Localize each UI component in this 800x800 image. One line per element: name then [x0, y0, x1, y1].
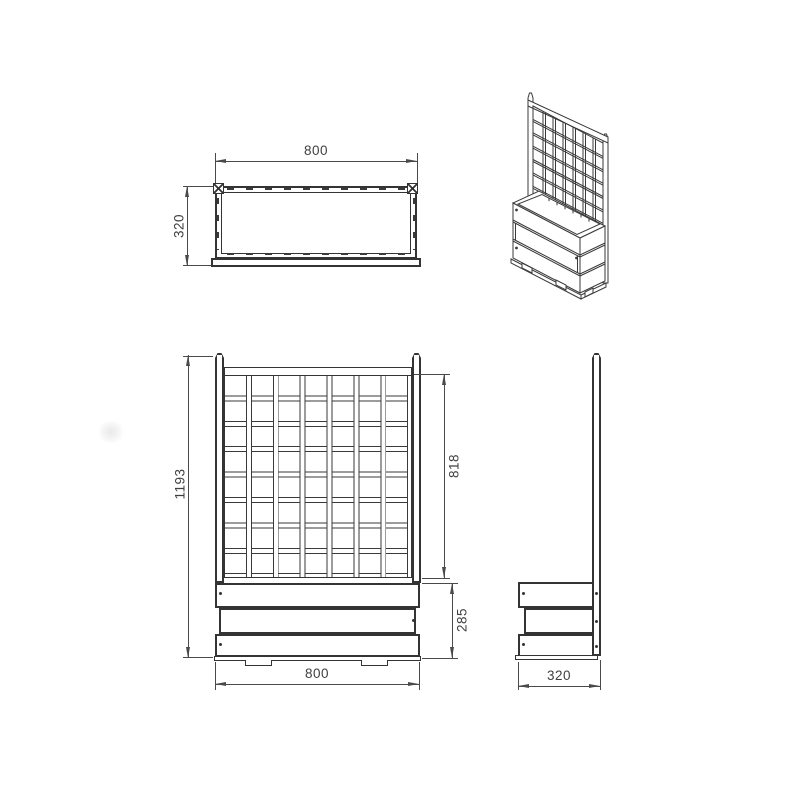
screw-dot [219, 592, 222, 595]
side-planter-slat-middle [524, 608, 594, 634]
arrowhead [450, 583, 454, 594]
front-planter-slat-top [215, 583, 420, 608]
arrowhead [442, 567, 446, 578]
arrowhead [215, 159, 226, 163]
dimension-overall-height: 1193 [188, 355, 189, 658]
front-planter-slat-middle [219, 608, 416, 634]
hidden-slat-dashes [227, 188, 405, 190]
iso-end-face [580, 226, 605, 293]
arrowhead [215, 682, 226, 686]
screw-dot [595, 592, 598, 595]
arrowhead [186, 647, 190, 658]
dim-label-top-width: 800 [301, 143, 331, 158]
arrowhead [450, 647, 454, 658]
dim-label-overall-height: 1193 [173, 465, 188, 502]
screw-dot [522, 643, 525, 646]
arrowhead [185, 255, 189, 266]
front-foot-right [361, 660, 388, 666]
dimension-side-depth: 320 [518, 686, 600, 687]
hidden-slat-dashes [413, 198, 415, 250]
arrowhead [406, 159, 417, 163]
front-trellis-lattice [224, 376, 412, 578]
screw-dot [412, 619, 415, 622]
dim-label-planter-height: 285 [455, 605, 470, 635]
extension-line [419, 662, 420, 690]
arrowhead [442, 374, 446, 385]
iso-screw-dot [516, 247, 518, 249]
paper-smudge [98, 420, 124, 444]
front-planter-slat-bottom [215, 634, 420, 657]
side-planter-slat-top [518, 582, 594, 608]
extension-line [422, 578, 450, 579]
arrowhead [589, 684, 600, 688]
dimension-planter-height: 285 [452, 583, 453, 658]
arrowhead [518, 684, 529, 688]
dim-label-side-depth: 320 [544, 668, 574, 683]
post-top-view-right [407, 183, 418, 194]
post-top-view-left [213, 183, 224, 194]
front-post-right [412, 353, 421, 583]
iso-screw-dot [576, 257, 578, 259]
extension-line [422, 658, 458, 659]
arrowhead [408, 682, 419, 686]
screw-dot [219, 643, 222, 646]
dimension-front-width: 800 [215, 684, 419, 685]
dim-label-trellis-height: 818 [447, 451, 462, 481]
screw-dot [595, 645, 598, 648]
extension-line [417, 153, 418, 185]
front-post-left [215, 353, 224, 583]
hidden-slat-dashes [217, 198, 219, 250]
isometric-view [495, 58, 645, 308]
arrowhead [186, 355, 190, 366]
screw-dot [595, 620, 598, 623]
iso-post-left [528, 93, 533, 198]
iso-screw-dot [516, 209, 518, 211]
dimension-top-depth: 320 [187, 186, 188, 266]
arrowhead [185, 186, 189, 197]
iso-planter-box [511, 191, 606, 299]
side-planter-slat-bottom [518, 634, 594, 657]
front-foot-left [245, 660, 272, 666]
dimension-top-width: 800 [215, 161, 417, 162]
planter-inner-wall-top [221, 192, 411, 254]
planter-front-cap-top [211, 258, 421, 267]
dim-label-front-width: 800 [302, 666, 332, 681]
side-planter-base [515, 655, 598, 660]
extension-line [215, 153, 216, 185]
extension-line [600, 660, 601, 690]
hidden-slat-dashes [227, 253, 405, 255]
dimension-trellis-height: 818 [444, 374, 445, 578]
dim-label-top-depth: 320 [172, 211, 187, 241]
screw-dot [522, 592, 525, 595]
drawing-sheet: 800 320 [0, 0, 800, 800]
front-top-rail [224, 367, 412, 376]
